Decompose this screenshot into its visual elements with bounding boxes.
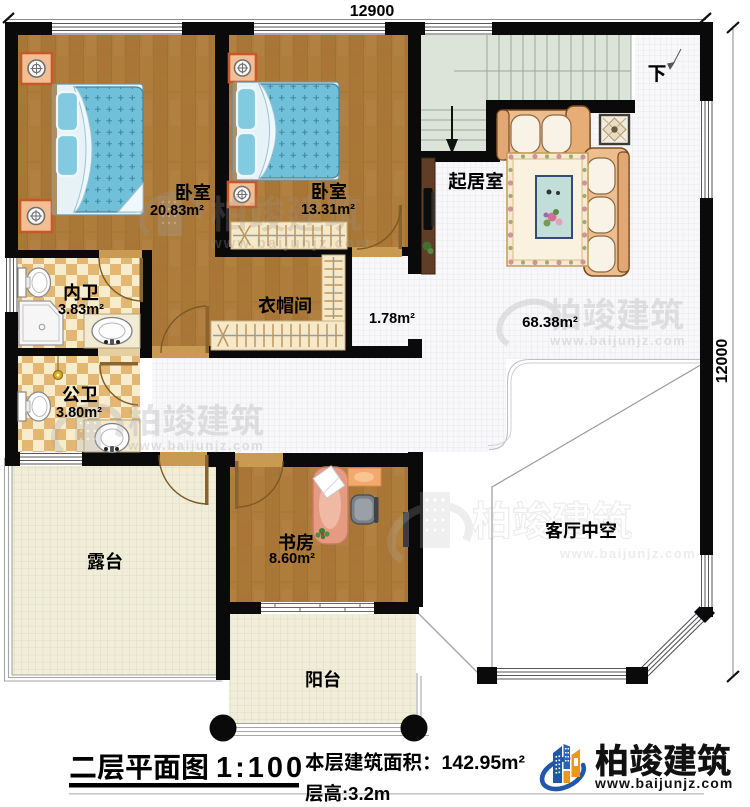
svg-text:www.baijunjz.com: www.baijunjz.com xyxy=(549,330,686,349)
svg-text:www.baijunjz.com: www.baijunjz.com xyxy=(594,773,733,793)
svg-text:二层平面图: 二层平面图 xyxy=(69,746,209,786)
svg-text:层高:3.2m: 层高:3.2m xyxy=(305,780,390,806)
svg-text:www.baijunjz.com: www.baijunjz.com xyxy=(559,543,696,562)
svg-text:3.80m²: 3.80m² xyxy=(56,401,102,422)
svg-text:1:100: 1:100 xyxy=(216,744,305,786)
svg-text:露台: 露台 xyxy=(87,548,123,574)
svg-text:68.38m²: 68.38m² xyxy=(522,311,578,332)
svg-text:1.78m²: 1.78m² xyxy=(369,307,415,328)
svg-text:起居室: 起居室 xyxy=(448,168,504,194)
svg-text:www.baijunjz.com: www.baijunjz.com xyxy=(209,232,371,253)
svg-text:8.60m²: 8.60m² xyxy=(269,547,315,568)
svg-text:客厅中空: 客厅中空 xyxy=(545,517,617,543)
svg-text:www.baijunjz.com: www.baijunjz.com xyxy=(127,435,264,454)
svg-text:衣帽间: 衣帽间 xyxy=(258,292,312,318)
svg-text:13.31m²: 13.31m² xyxy=(301,198,355,219)
svg-text:下: 下 xyxy=(647,59,666,86)
svg-text:阳台: 阳台 xyxy=(305,666,341,692)
svg-text:12900: 12900 xyxy=(350,0,395,21)
svg-text:3.83m²: 3.83m² xyxy=(58,298,104,319)
svg-text:20.83m²: 20.83m² xyxy=(150,199,204,220)
